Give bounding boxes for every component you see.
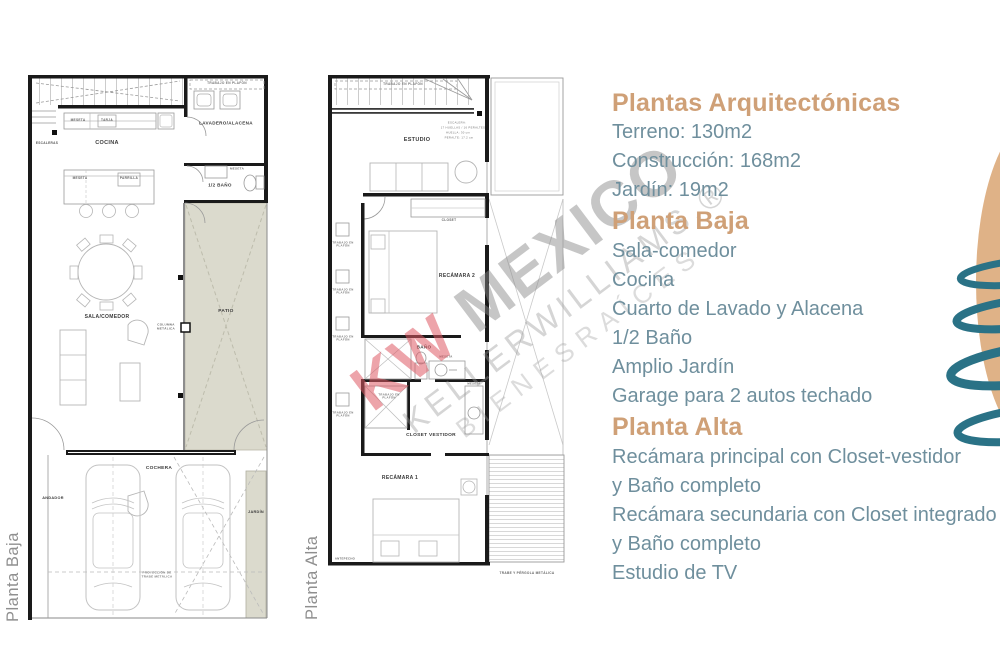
label-escalera-spec-4: PERALTE: 17.2 cm — [445, 136, 474, 139]
label-plafon-4: TRABAJO EN PLAFÓN — [332, 412, 354, 419]
label-plafon-2: TRABAJO EN PLAFÓN — [332, 289, 354, 296]
planta-baja-plan: ESCALERAS TRABAJO EN PLAFÓN LAVADERO/ALA… — [28, 75, 268, 620]
planta-alta-plan: TRABAJO EN PLAFÓN ESTUDIO ESCALERA: 17 H… — [325, 75, 570, 620]
baja-item-5: Amplio Jardín — [612, 353, 997, 382]
panel-title: Plantas Arquitectónicas — [612, 88, 997, 118]
listing-sheet: ESCALERAS TRABAJO EN PLAFÓN LAVADERO/ALA… — [0, 0, 1000, 667]
label-recamara2: RECÁMARA 2 — [439, 274, 475, 280]
label-trabe: TRABE Y PÉRGOLA METÁLICA — [500, 572, 555, 576]
label-closet: CLOSET — [442, 219, 457, 223]
planta-alta-side-label: Planta Alta — [303, 536, 322, 620]
heading-planta-alta: Planta Alta — [612, 411, 997, 443]
label-meseta-counter: MESETA — [71, 119, 86, 123]
label-andador: ANDADOR — [42, 496, 64, 500]
label-meseta-bano: MESETA — [439, 355, 452, 358]
label-escaleras: ESCALERAS — [36, 142, 58, 146]
label-estudio: ESTUDIO — [404, 137, 431, 143]
label-meseta-island: MESETA — [73, 177, 88, 181]
spec-terreno: Terreno: 130m2 — [612, 118, 997, 147]
alta-item-5: Estudio de TV — [612, 559, 997, 588]
planta-baja-linework — [28, 75, 268, 620]
label-meseta-bano: MESETA — [230, 167, 244, 170]
planta-alta-linework — [325, 75, 570, 620]
label-proyeccion: PROYECCIÓN DE TRABE METÁLICA — [140, 571, 174, 578]
baja-item-6: Garage para 2 autos techado — [612, 382, 997, 411]
label-parrilla: PARRILLA — [120, 177, 138, 181]
alta-item-2: y Baño completo — [612, 472, 997, 501]
label-escalera-spec-1: ESCALERA: — [448, 121, 466, 124]
planta-baja-side-label: Planta Baja — [4, 532, 23, 622]
label-trabajo-plafon: TRABAJO EN PLAFÓN — [207, 82, 247, 86]
label-sala-comedor: SALA/COMEDOR — [85, 315, 130, 321]
label-jardin: JARDÍN — [248, 510, 264, 514]
label-tarja: TARJA — [101, 119, 113, 123]
pergola-area — [489, 455, 564, 562]
label-antepecho: ANTEPECHO — [335, 557, 355, 560]
label-plafon-3: TRABAJO EN PLAFÓN — [332, 336, 354, 343]
info-panel: Plantas Arquitectónicas Terreno: 130m2 C… — [612, 88, 997, 588]
label-bano: BAÑO — [417, 344, 432, 349]
label-trabajo-plafon-stair: TRABAJO EN PLAFÓN — [383, 83, 423, 87]
label-meseta-vestidor: MESETA — [467, 382, 480, 385]
jardin-area — [246, 471, 266, 618]
label-cocina: COCINA — [95, 140, 119, 146]
baja-item-4: 1/2 Baño — [612, 324, 997, 353]
label-plafon-vestidor: TRABAJO EN PLAFÓN — [377, 394, 401, 401]
heading-planta-baja: Planta Baja — [612, 205, 997, 237]
label-cochera: COCHERA — [146, 466, 172, 472]
spec-construccion: Construcción: 168m2 — [612, 147, 997, 176]
label-plafon-1: TRABAJO EN PLAFÓN — [332, 242, 354, 249]
alta-item-1: Recámara principal con Closet-vestidor — [612, 443, 997, 472]
baja-item-1: Sala-comedor — [612, 237, 997, 266]
label-patio: PATIO — [218, 309, 233, 315]
alta-item-4: y Baño completo — [612, 530, 997, 559]
baja-item-2: Cocina — [612, 266, 997, 295]
label-escalera-spec-3: HUELLA: 30 cm — [446, 131, 470, 134]
label-closet-vestidor: CLOSET VESTIDOR — [406, 433, 456, 439]
label-medio-bano: 1/2 BAÑO — [208, 182, 232, 187]
label-recamara1: RECÁMARA 1 — [382, 476, 418, 482]
spec-jardin: Jardín: 19m2 — [612, 176, 997, 205]
label-escalera-spec-2: 17 HUELLAS / 16 PERALTES — [441, 126, 485, 129]
label-columna: COLUMNA METÁLICA — [153, 323, 179, 330]
baja-item-3: Cuarto de Lavado y Alacena — [612, 295, 997, 324]
label-lavadero: LAVADERO/ALACENA — [199, 120, 253, 125]
alta-item-3: Recámara secundaria con Closet integrado — [612, 501, 997, 530]
